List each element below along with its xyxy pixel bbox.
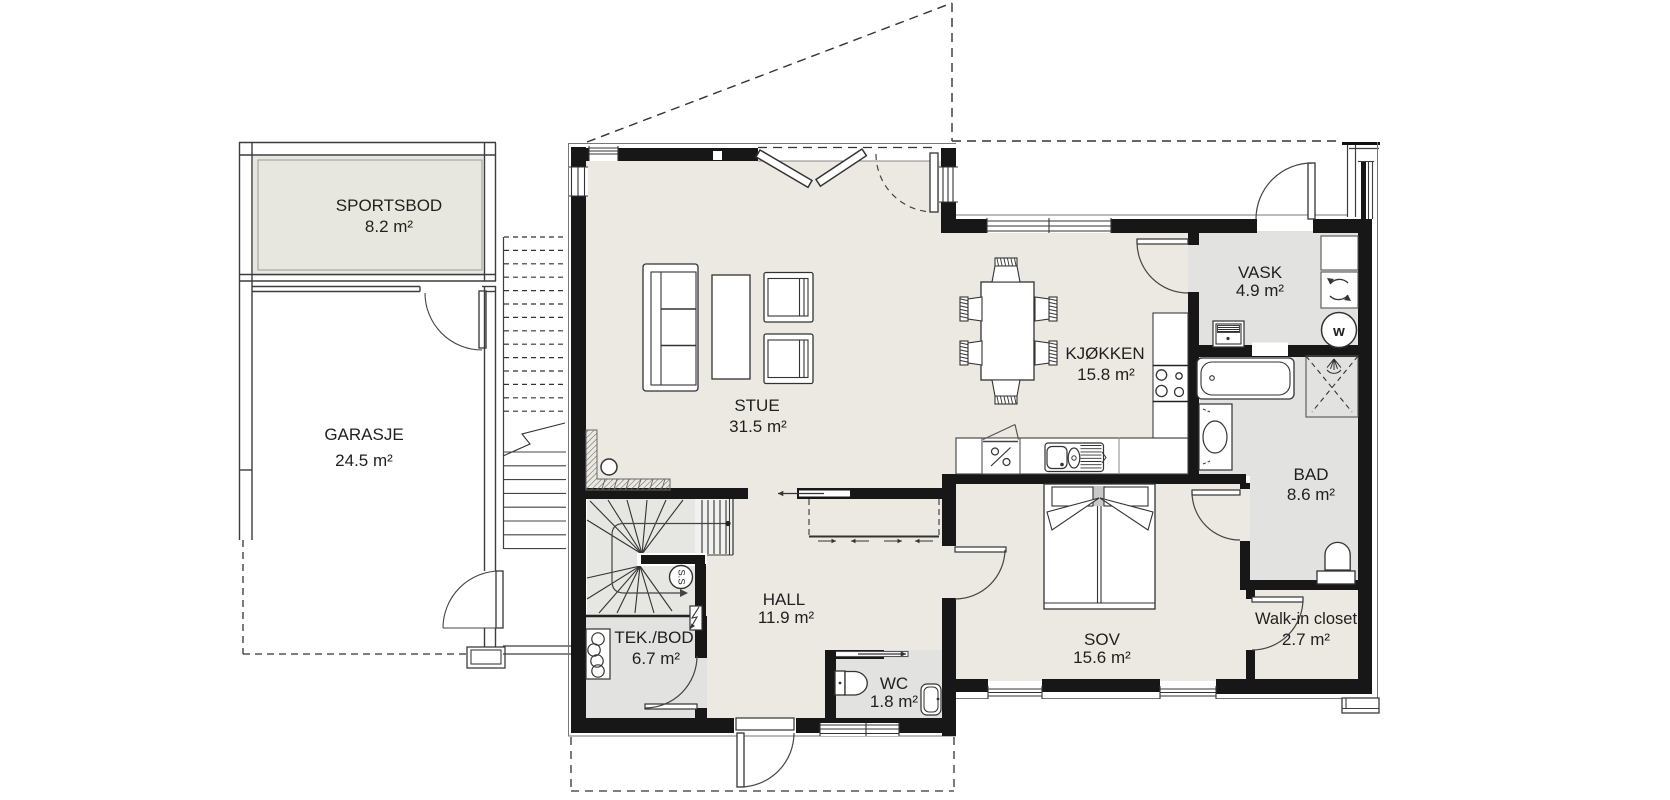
- svg-text:KJØKKEN: KJØKKEN: [1065, 344, 1144, 363]
- svg-text:2.7 m²: 2.7 m²: [1282, 630, 1331, 649]
- svg-text:15.6 m²: 15.6 m²: [1073, 648, 1131, 667]
- svg-text:STUE: STUE: [734, 396, 779, 415]
- svg-text:6.7 m²: 6.7 m²: [632, 649, 681, 668]
- svg-text:VASK: VASK: [1238, 263, 1283, 282]
- svg-text:8.2 m²: 8.2 m²: [365, 217, 414, 236]
- svg-text:SPORTSBOD: SPORTSBOD: [336, 196, 442, 215]
- svg-text:24.5 m²: 24.5 m²: [335, 451, 393, 470]
- svg-text:BAD: BAD: [1294, 465, 1329, 484]
- svg-text:8.6 m²: 8.6 m²: [1287, 485, 1336, 504]
- svg-text:SOV: SOV: [1084, 630, 1121, 649]
- svg-text:11.9 m²: 11.9 m²: [758, 608, 815, 627]
- svg-text:WC: WC: [880, 674, 908, 693]
- svg-text:TEK./BOD: TEK./BOD: [614, 628, 693, 647]
- svg-text:S.S: S.S: [676, 569, 687, 584]
- svg-text:15.8 m²: 15.8 m²: [1077, 365, 1135, 384]
- svg-text:1.8 m²: 1.8 m²: [870, 692, 919, 711]
- svg-text:4.9 m²: 4.9 m²: [1236, 281, 1285, 300]
- svg-text:Walk-in closet: Walk-in closet: [1255, 610, 1357, 628]
- svg-text:31.5 m²: 31.5 m²: [729, 417, 787, 436]
- svg-text:HALL: HALL: [763, 590, 806, 609]
- svg-text:w: w: [1332, 323, 1345, 340]
- svg-text:GARASJE: GARASJE: [324, 425, 403, 444]
